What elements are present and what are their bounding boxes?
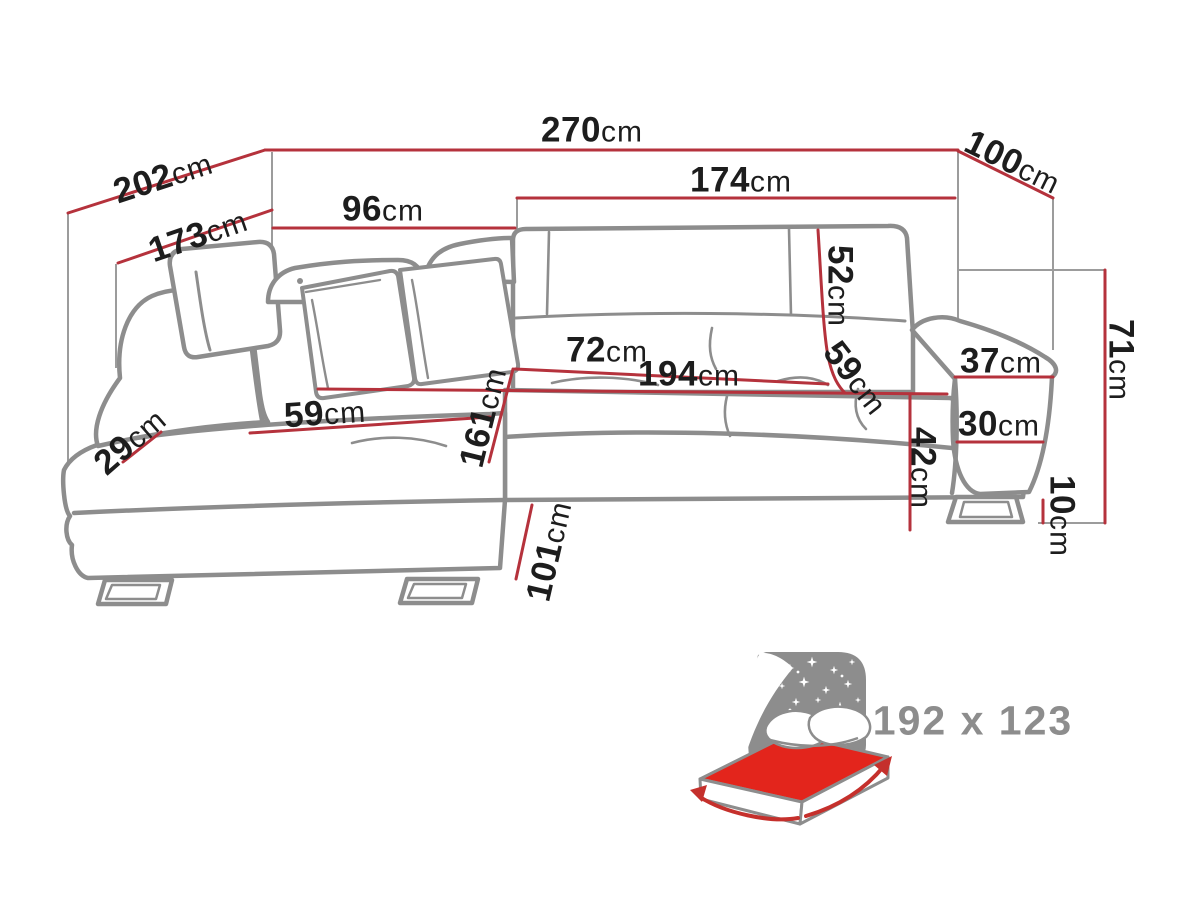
dimension-chaise-top-width: 96cm [342, 192, 424, 227]
dimension-right-section-width: 174cm [690, 163, 792, 198]
fold-out-bed-icon [690, 652, 892, 824]
dimension-overall-width: 270cm [541, 113, 643, 148]
pillow-icon [809, 707, 870, 745]
sleeping-area-size: 192 x 123 [873, 698, 1073, 745]
dimension-seat-depth-front: 72cm [566, 333, 648, 368]
dimension-armrest-front-height: 30cm [958, 407, 1040, 442]
dimension-total-height: 71cm [1104, 319, 1139, 401]
dimension-leg-height: 10cm [1045, 475, 1080, 557]
dimension-backrest-height: 52cm [823, 245, 858, 327]
sofa-dimension-diagram: 270cm 202cm 100cm 174cm 96cm 173cm 52cm … [0, 0, 1200, 900]
dimension-chaise-seat-width: 59cm [283, 393, 367, 434]
sofa-seat-right [505, 390, 1025, 500]
bed-icon [700, 707, 888, 824]
dimension-armrest-top-width: 37cm [960, 344, 1042, 379]
dimension-seat-height: 42cm [906, 427, 941, 509]
dimension-seat-width-total: 194cm [638, 357, 740, 392]
sofa-pillow [400, 259, 518, 384]
